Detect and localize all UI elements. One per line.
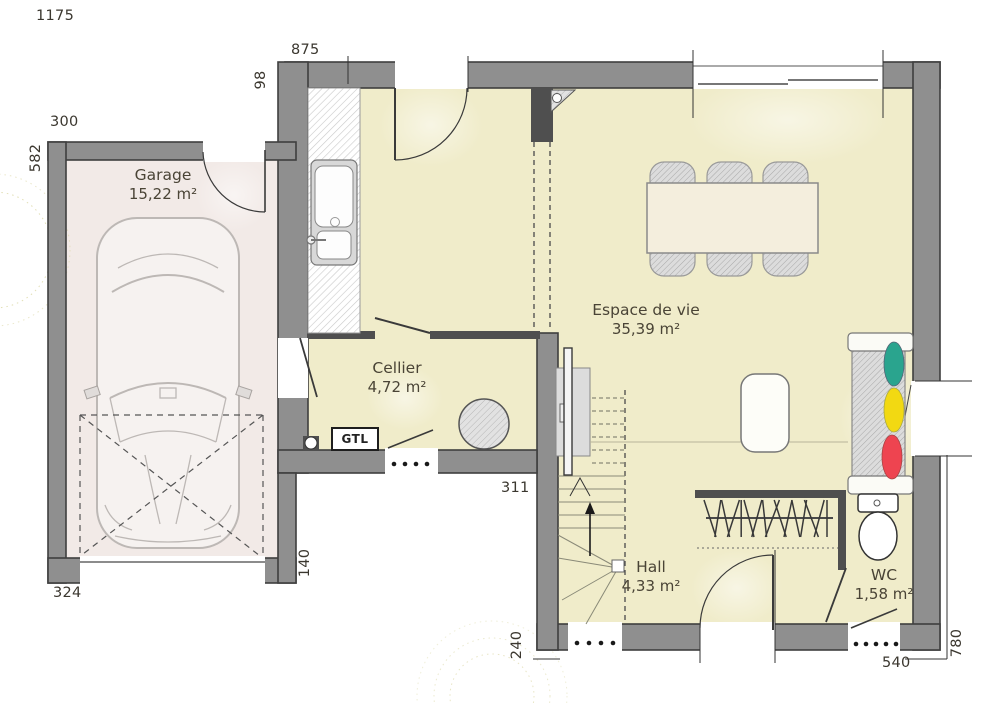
cushion-red xyxy=(882,435,902,479)
wall-cellier-north-right xyxy=(430,331,540,339)
garage-area: 15,22 m² xyxy=(129,185,197,204)
kitchen-counter xyxy=(307,88,360,333)
cellier-area: 4,72 m² xyxy=(368,378,427,397)
dining-table xyxy=(647,183,818,253)
wall-house-west xyxy=(278,62,308,473)
dim-garage-front: 300 xyxy=(50,114,79,130)
room-label-wc: WC 1,58 m² xyxy=(855,566,914,604)
garage-vehicle-door xyxy=(80,556,265,585)
wall-stub-north xyxy=(531,88,553,142)
living-floor xyxy=(308,88,913,624)
dim-garage-bottom: 324 xyxy=(53,585,82,601)
sofa xyxy=(848,333,913,494)
room-label-garage: Garage 15,22 m² xyxy=(129,166,197,204)
gtl-label: GTL xyxy=(342,432,369,446)
dim-hall-bottom: 240 xyxy=(509,631,525,660)
floor-plan-drawing xyxy=(0,0,1000,703)
dining-set xyxy=(647,162,818,276)
garage-wall-east xyxy=(278,473,296,583)
closet-wall-right xyxy=(838,490,846,570)
floor-drain xyxy=(303,436,319,451)
cushion-yellow xyxy=(884,388,904,432)
garage-name: Garage xyxy=(129,166,197,185)
cushion-teal xyxy=(884,342,904,386)
dim-garage-left-side: 582 xyxy=(28,144,44,173)
dim-front-offset: 98 xyxy=(253,70,269,89)
dim-cellier-bottom: 311 xyxy=(501,480,530,496)
garage-wall-west xyxy=(48,142,66,583)
room-label-cellier: Cellier 4,72 m² xyxy=(368,359,427,397)
dim-overall-width: 1175 xyxy=(36,8,74,24)
room-label-espace-de-vie: Espace de vie 35,39 m² xyxy=(592,301,700,339)
hall-name: Hall xyxy=(622,558,681,577)
closet-wall-top xyxy=(695,490,845,498)
tv-screen xyxy=(564,348,572,475)
wall-hall-west xyxy=(537,333,558,650)
water-heater xyxy=(459,399,509,449)
wc-name: WC xyxy=(855,566,914,585)
wc-area: 1,58 m² xyxy=(855,585,914,604)
dim-garage-right-side: 140 xyxy=(297,549,313,578)
floor-plan: 1175 875 98 300 582 324 140 311 240 540 … xyxy=(0,0,1000,703)
dim-right-side: 780 xyxy=(949,629,965,658)
car xyxy=(84,218,252,548)
bay-window xyxy=(693,61,883,89)
corner-post xyxy=(553,94,562,103)
wall-east xyxy=(913,62,940,650)
espace-name: Espace de vie xyxy=(592,301,700,320)
understair-vent-door xyxy=(568,622,622,652)
dim-house-front: 875 xyxy=(291,42,320,58)
coffee-table xyxy=(741,374,789,452)
toilet xyxy=(858,494,898,560)
hall-area: 4,33 m² xyxy=(622,577,681,596)
kitchen-sink xyxy=(307,160,357,265)
dim-wc-bottom: 540 xyxy=(882,655,911,671)
room-label-hall: Hall 4,33 m² xyxy=(622,558,681,596)
espace-area: 35,39 m² xyxy=(592,320,700,339)
cellier-name: Cellier xyxy=(368,359,427,378)
